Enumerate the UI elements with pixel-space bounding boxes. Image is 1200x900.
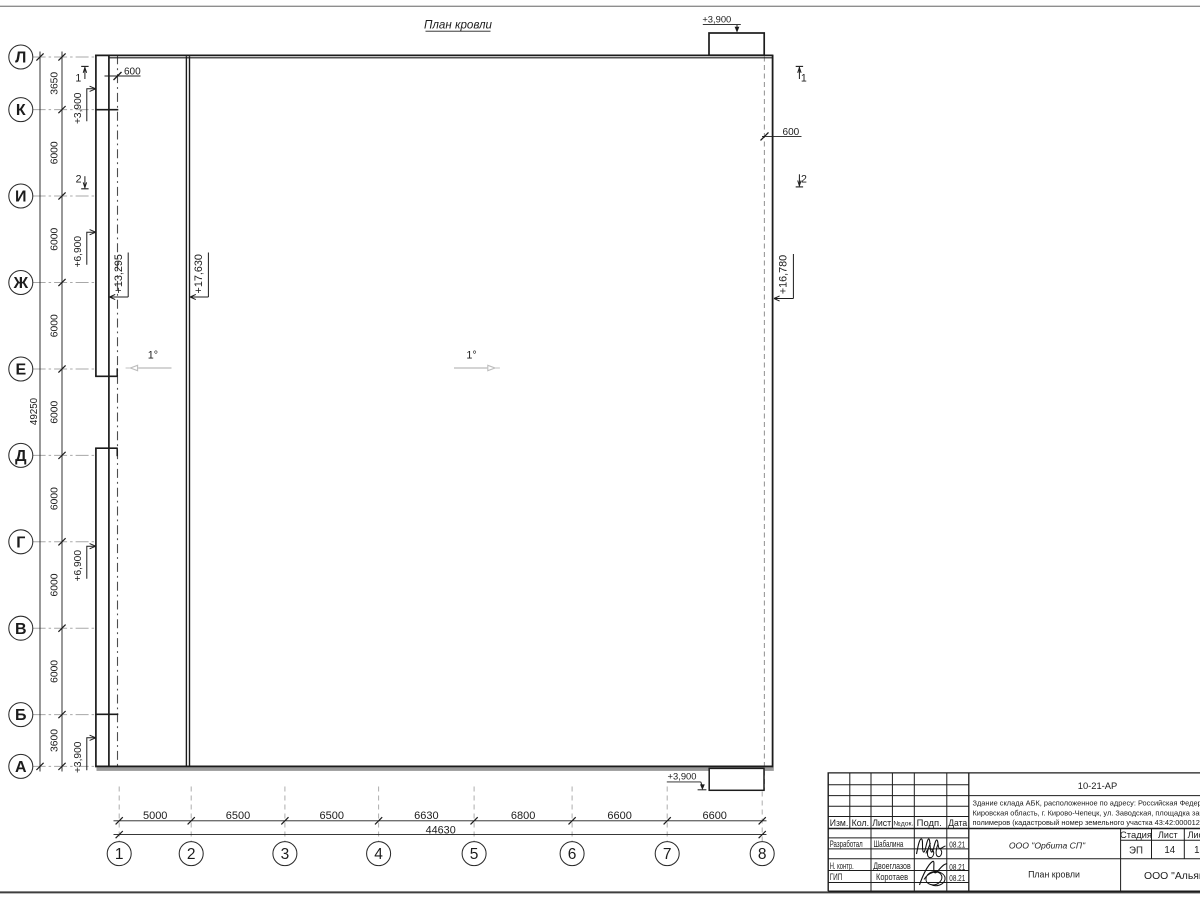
svg-text:Лист: Лист: [1188, 830, 1200, 840]
svg-text:В: В: [15, 621, 27, 638]
svg-text:К: К: [16, 102, 26, 119]
svg-text:ООО "Альянспроект": ООО "Альянспроект": [1144, 871, 1200, 882]
svg-text:+3,900: +3,900: [668, 771, 697, 782]
svg-text:10-21-АР: 10-21-АР: [1078, 781, 1118, 791]
svg-text:Здание склада АБК, расположенн: Здание склада АБК, расположенное по адре…: [973, 799, 1200, 808]
svg-text:Н. контр.: Н. контр.: [830, 861, 854, 871]
svg-text:ЭП: ЭП: [1129, 846, 1143, 857]
svg-text:14: 14: [1164, 845, 1175, 856]
svg-text:Лист: Лист: [1158, 830, 1178, 840]
svg-text:Д: Д: [15, 448, 27, 465]
svg-text:+6,900: +6,900: [73, 550, 84, 582]
svg-text:Разработал: Разработал: [830, 839, 863, 849]
svg-text:Б: Б: [15, 707, 27, 724]
svg-text:15: 15: [1194, 845, 1200, 856]
svg-text:5: 5: [470, 846, 479, 863]
svg-text:6800: 6800: [511, 810, 535, 822]
svg-text:Дата: Дата: [948, 818, 968, 828]
svg-text:6000: 6000: [49, 573, 60, 596]
svg-text:6000: 6000: [49, 228, 60, 251]
svg-text:08.21: 08.21: [949, 863, 965, 872]
svg-text:6500: 6500: [226, 810, 250, 822]
svg-text:№док.: №док.: [893, 821, 913, 828]
svg-text:6000: 6000: [49, 660, 60, 683]
svg-text:44630: 44630: [426, 824, 456, 836]
svg-text:6000: 6000: [49, 400, 60, 423]
svg-text:полимеров (кадастровый номер з: полимеров (кадастровый номер земельного …: [973, 818, 1200, 827]
svg-text:6000: 6000: [49, 314, 60, 337]
svg-text:6600: 6600: [607, 810, 631, 822]
svg-text:3: 3: [281, 846, 290, 863]
svg-text:+6,900: +6,900: [73, 236, 84, 268]
svg-text:+16,780: +16,780: [777, 255, 789, 294]
svg-text:А: А: [15, 759, 27, 776]
svg-text:08.21: 08.21: [949, 874, 965, 883]
svg-text:Л: Л: [15, 50, 26, 67]
svg-text:1: 1: [801, 72, 807, 84]
svg-text:Кировская область, г. Кирово-Ч: Кировская область, г. Кирово-Чепецк, ул.…: [973, 809, 1200, 818]
svg-text:8: 8: [758, 846, 767, 863]
svg-text:ГИП: ГИП: [830, 872, 843, 882]
svg-text:2: 2: [187, 846, 196, 863]
svg-text:6000: 6000: [49, 487, 60, 510]
svg-text:Шабалина: Шабалина: [874, 839, 904, 849]
svg-text:Подп.: Подп.: [917, 817, 942, 828]
svg-text:+3,900: +3,900: [73, 92, 84, 124]
svg-text:Г: Г: [16, 534, 25, 551]
svg-text:08.21: 08.21: [949, 841, 965, 850]
svg-text:+13,295: +13,295: [113, 254, 125, 293]
svg-text:3600: 3600: [49, 729, 60, 752]
svg-text:Стадия: Стадия: [1120, 829, 1152, 840]
svg-text:И: И: [15, 189, 27, 206]
svg-text:ООО "Орбита СП": ООО "Орбита СП": [1009, 840, 1086, 850]
svg-text:1: 1: [115, 846, 124, 863]
svg-text:План кровли: План кровли: [424, 19, 493, 32]
svg-text:1: 1: [75, 72, 81, 84]
svg-text:1°: 1°: [466, 349, 476, 361]
svg-text:План кровли: План кровли: [1028, 870, 1080, 880]
svg-text:6: 6: [568, 846, 577, 863]
svg-text:5000: 5000: [143, 810, 167, 822]
svg-text:Кол.: Кол.: [852, 817, 870, 828]
svg-text:6600: 6600: [702, 810, 726, 822]
svg-text:Лист: Лист: [872, 817, 892, 828]
svg-text:6500: 6500: [320, 810, 344, 822]
svg-text:Двоеглазов: Двоеглазов: [873, 861, 911, 871]
svg-text:+3,900: +3,900: [702, 14, 731, 25]
svg-text:7: 7: [663, 846, 672, 863]
svg-text:Е: Е: [15, 362, 26, 379]
svg-text:4: 4: [374, 846, 383, 863]
svg-text:6630: 6630: [414, 810, 438, 822]
svg-text:2: 2: [801, 173, 807, 185]
svg-text:Ж: Ж: [13, 275, 29, 292]
svg-text:3650: 3650: [49, 72, 60, 95]
svg-text:Коротаев: Коротаев: [876, 872, 908, 882]
svg-text:1°: 1°: [148, 349, 158, 361]
svg-text:+3,900: +3,900: [73, 741, 84, 773]
svg-text:2: 2: [76, 174, 82, 186]
svg-text:6000: 6000: [49, 141, 60, 164]
svg-text:+17,630: +17,630: [193, 254, 205, 293]
svg-text:49250: 49250: [29, 397, 40, 425]
svg-text:Изм.: Изм.: [830, 817, 849, 828]
